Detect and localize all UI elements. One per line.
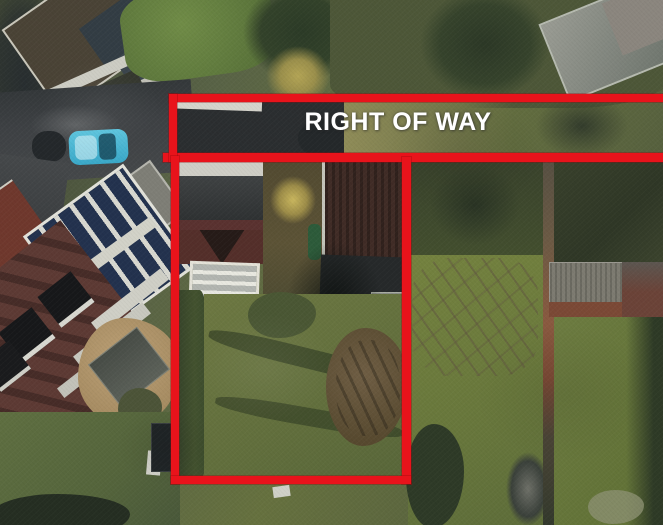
plot-boundary-right-line (402, 157, 411, 484)
white-object-below-plot (272, 485, 290, 498)
plot-grey-roof (177, 176, 263, 222)
car-roof-highlight (74, 135, 97, 160)
far-right-brick-edge (549, 302, 625, 317)
teal-car (68, 128, 129, 165)
plot-boundary-bottom-line (171, 476, 411, 484)
brick-garden-wall (543, 158, 554, 525)
band-trees-right (536, 94, 628, 158)
car-shadow (32, 131, 66, 162)
plot-white-strip (177, 162, 265, 176)
plot-boundary-left-line (171, 156, 179, 484)
overhanging-branches (412, 258, 538, 376)
right-of-way-band-top-line (169, 94, 663, 102)
far-right-trees-top (554, 155, 663, 265)
right-of-way-band-bottom-line (163, 153, 663, 162)
aerial-photo-annotated: RIGHT OF WAY (0, 0, 663, 525)
far-right-building-corner (622, 262, 663, 317)
right-of-way-band-left-line (169, 94, 177, 162)
right-of-way-label: RIGHT OF WAY (292, 108, 504, 137)
car-windscreen (98, 133, 116, 160)
neighbour-bush-bottom (406, 424, 464, 525)
plot-tree-branch (336, 340, 400, 436)
